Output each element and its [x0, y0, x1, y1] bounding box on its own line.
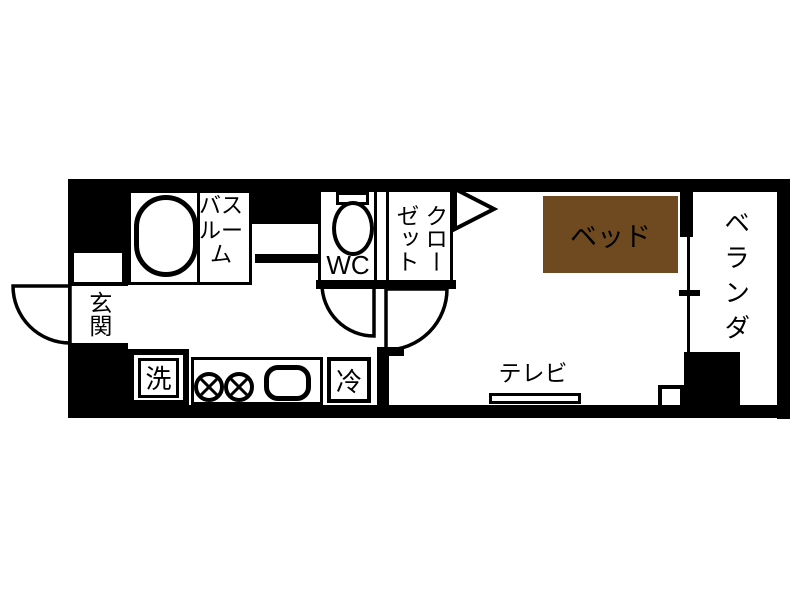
door-direction-triangle	[455, 189, 494, 229]
closet-label-col1: クロー	[420, 204, 449, 273]
wc-wall-right	[374, 190, 377, 282]
entrance-label-text: 玄関	[85, 291, 111, 337]
bathroom-label-line2: ルーム	[190, 219, 252, 268]
tv-stand	[489, 393, 581, 404]
partition-wall-stub	[377, 347, 404, 356]
veranda-wall-upper	[680, 191, 693, 237]
entrance-west-wall	[68, 285, 71, 343]
washing-machine: 洗	[128, 349, 189, 406]
wall-right	[777, 179, 790, 419]
bed: ベッド	[543, 196, 678, 273]
closet-label-text: クロー ゼット	[391, 204, 449, 273]
wall-block-bottom-left	[68, 343, 128, 413]
veranda-wall-block	[684, 352, 740, 409]
veranda-window-tick	[679, 290, 700, 296]
washer-label: 洗	[145, 359, 171, 396]
hall-counter-wall	[255, 254, 320, 263]
toilet-bowl	[332, 201, 374, 256]
wall-block-hall	[252, 186, 318, 224]
veranda-label: ベランダ	[712, 197, 758, 360]
room-door-arc	[386, 289, 447, 350]
wc-door-arc	[322, 284, 374, 336]
closet-wall-right	[450, 192, 453, 281]
kitchen-sink	[264, 365, 311, 401]
tv-label-text: テレビ	[499, 361, 568, 387]
entrance-door-arc	[13, 286, 70, 343]
bed-label: ベッド	[570, 215, 651, 254]
closet-wall-left	[386, 192, 389, 281]
wc-wall-left	[318, 190, 321, 282]
closet-label: クロー ゼット	[392, 198, 448, 278]
bathroom-label-text: バス ルーム	[190, 194, 252, 268]
tv-label: テレビ	[490, 360, 576, 388]
floor-plan: 洗 冷 ベッド	[0, 0, 800, 601]
partition-wall-lower	[377, 347, 389, 409]
bathtub	[134, 195, 198, 277]
refrigerator: 冷	[327, 357, 371, 403]
wc-label: WC	[322, 250, 374, 282]
shoe-cabinet	[74, 253, 122, 282]
bathroom-label-line1: バス	[190, 194, 252, 219]
wc-label-text: WC	[326, 251, 369, 280]
outdoor-unit	[658, 385, 684, 409]
closet-label-col2: ゼット	[391, 204, 420, 273]
bathroom-label: バス ルーム	[190, 203, 252, 259]
washing-machine-inner: 洗	[138, 358, 179, 398]
fridge-label: 冷	[336, 362, 362, 399]
entrance-label: 玄関	[74, 287, 122, 341]
veranda-label-text: ベランダ	[720, 209, 749, 349]
